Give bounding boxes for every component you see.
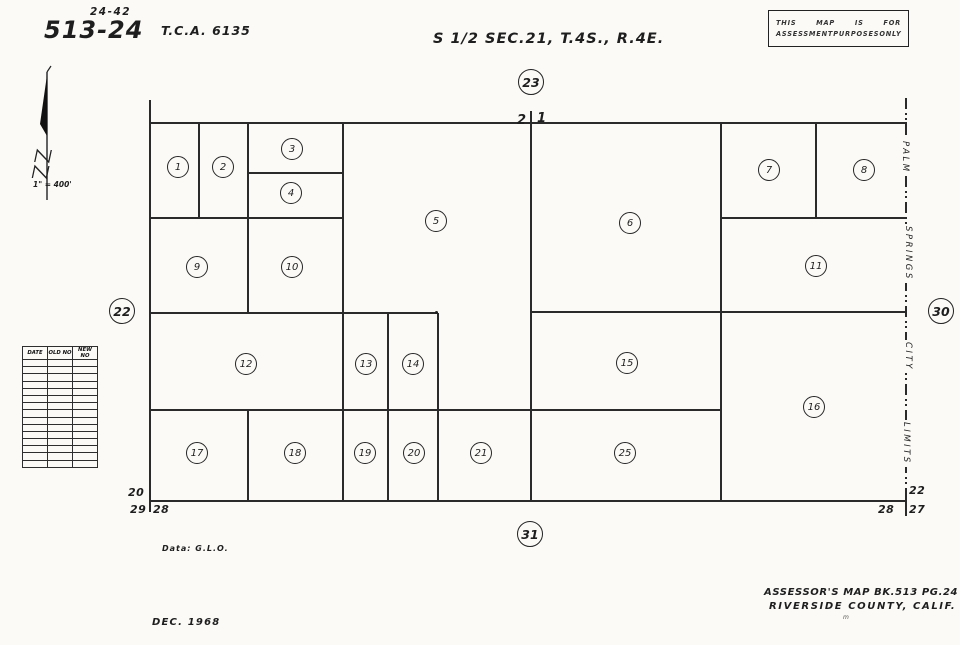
adjacent-page-ref-north: 23 bbox=[518, 69, 544, 95]
adjacent-page-ref-south: 31 bbox=[517, 521, 543, 547]
stamp-line-2: ASSESSMENTPURPOSESONLY bbox=[776, 30, 901, 38]
map-date: DEC. 1968 bbox=[152, 617, 220, 628]
map-boundary-bottom bbox=[150, 500, 907, 502]
lot-line bbox=[387, 313, 389, 500]
book-page-number: 513-24 bbox=[44, 16, 143, 44]
lot-line bbox=[198, 122, 200, 218]
adjacent-page-ref-west: 22 bbox=[109, 298, 135, 324]
section-center-line bbox=[530, 111, 532, 500]
parcel-circle-17: 17 bbox=[186, 442, 208, 464]
parcel-circle-3: 3 bbox=[281, 138, 303, 160]
parcel-circle-8: 8 bbox=[853, 159, 875, 181]
assessor-map-page: 24-42 513-24 T.C.A. 6135 S 1/2 SEC.21, T… bbox=[0, 0, 960, 645]
section-number: 28 bbox=[153, 503, 169, 516]
parcel-circle-14: 14 bbox=[402, 353, 424, 375]
lot-line bbox=[247, 172, 343, 174]
tca-number: T.C.A. 6135 bbox=[161, 23, 251, 38]
city-limits-word-city: CITY bbox=[903, 340, 913, 373]
map-boundary-left bbox=[149, 100, 151, 512]
corner-point bbox=[435, 311, 438, 314]
parcel-circle-15: 15 bbox=[616, 352, 638, 374]
adjacent-page-ref-east: 30 bbox=[928, 298, 954, 324]
parcel-circle-18: 18 bbox=[284, 442, 306, 464]
lot-line bbox=[150, 312, 438, 314]
lot-line bbox=[720, 217, 906, 219]
lot-line bbox=[530, 311, 721, 313]
revision-col-new: NEW NO bbox=[73, 347, 98, 360]
corner-tick-bottom-right bbox=[905, 493, 907, 515]
parcel-circle-11: 11 bbox=[805, 255, 827, 277]
lot-line bbox=[150, 217, 343, 219]
lot-line bbox=[720, 311, 906, 313]
city-limits-word-palm: PALM bbox=[900, 139, 910, 176]
lot-line bbox=[342, 122, 344, 500]
map-boundary-top bbox=[150, 122, 907, 124]
lot-line bbox=[247, 410, 249, 500]
parcel-circle-13: 13 bbox=[355, 353, 377, 375]
parcel-circle-21: 21 bbox=[470, 442, 492, 464]
north-arrow-icon bbox=[30, 62, 74, 212]
section-number: 20 bbox=[128, 486, 144, 499]
parcel-circle-16: 16 bbox=[803, 396, 825, 418]
assessor-map-reference-line2: RIVERSIDE COUNTY, CALIF. bbox=[769, 601, 956, 612]
parcel-circle-25: 25 bbox=[614, 442, 636, 464]
section-number: 28 bbox=[878, 503, 894, 516]
assessor-map-reference-line1: ASSESSOR'S MAP BK.513 PG.24 bbox=[764, 587, 958, 598]
revision-table: DATE OLD NO NEW NO bbox=[22, 346, 98, 468]
parcel-circle-6: 6 bbox=[619, 212, 641, 234]
revision-col-old: OLD NO bbox=[48, 347, 73, 360]
parcel-circle-5: 5 bbox=[425, 210, 447, 232]
lot-line bbox=[150, 409, 721, 411]
assessment-stamp-box: THISMAPISFOR ASSESSMENTPURPOSESONLY bbox=[768, 10, 909, 47]
section-tick-digit-left: 2 bbox=[517, 113, 527, 128]
section-number: 22 bbox=[909, 484, 925, 497]
parcel-circle-4: 4 bbox=[280, 182, 302, 204]
revision-table-body bbox=[23, 360, 98, 468]
section-number: 27 bbox=[909, 503, 925, 516]
lot-line bbox=[437, 313, 439, 500]
lot-line bbox=[815, 122, 817, 217]
stamp-line-1: THISMAPISFOR bbox=[776, 19, 901, 27]
parcel-circle-2: 2 bbox=[212, 156, 234, 178]
section-tick-digit-right: 1 bbox=[537, 111, 547, 126]
parcel-circle-9: 9 bbox=[186, 256, 208, 278]
parcel-circle-12: 12 bbox=[235, 353, 257, 375]
draftsman-mark: m bbox=[843, 614, 849, 621]
parcel-circle-10: 10 bbox=[281, 256, 303, 278]
scale-label: 1" = 400' bbox=[33, 180, 72, 189]
datum-note: Data: G.L.O. bbox=[162, 544, 229, 553]
parcel-circle-20: 20 bbox=[403, 442, 425, 464]
city-limits-word-limits: LIMITS bbox=[901, 420, 911, 467]
section-number: 29 bbox=[130, 503, 146, 516]
parcel-circle-1: 1 bbox=[167, 156, 189, 178]
parcel-circle-7: 7 bbox=[758, 159, 780, 181]
page-title: S 1/2 SEC.21, T.4S., R.4E. bbox=[433, 31, 664, 47]
city-limits-word-springs: SPRINGS bbox=[903, 224, 913, 283]
parcel-circle-19: 19 bbox=[354, 442, 376, 464]
revision-col-date: DATE bbox=[23, 347, 48, 360]
